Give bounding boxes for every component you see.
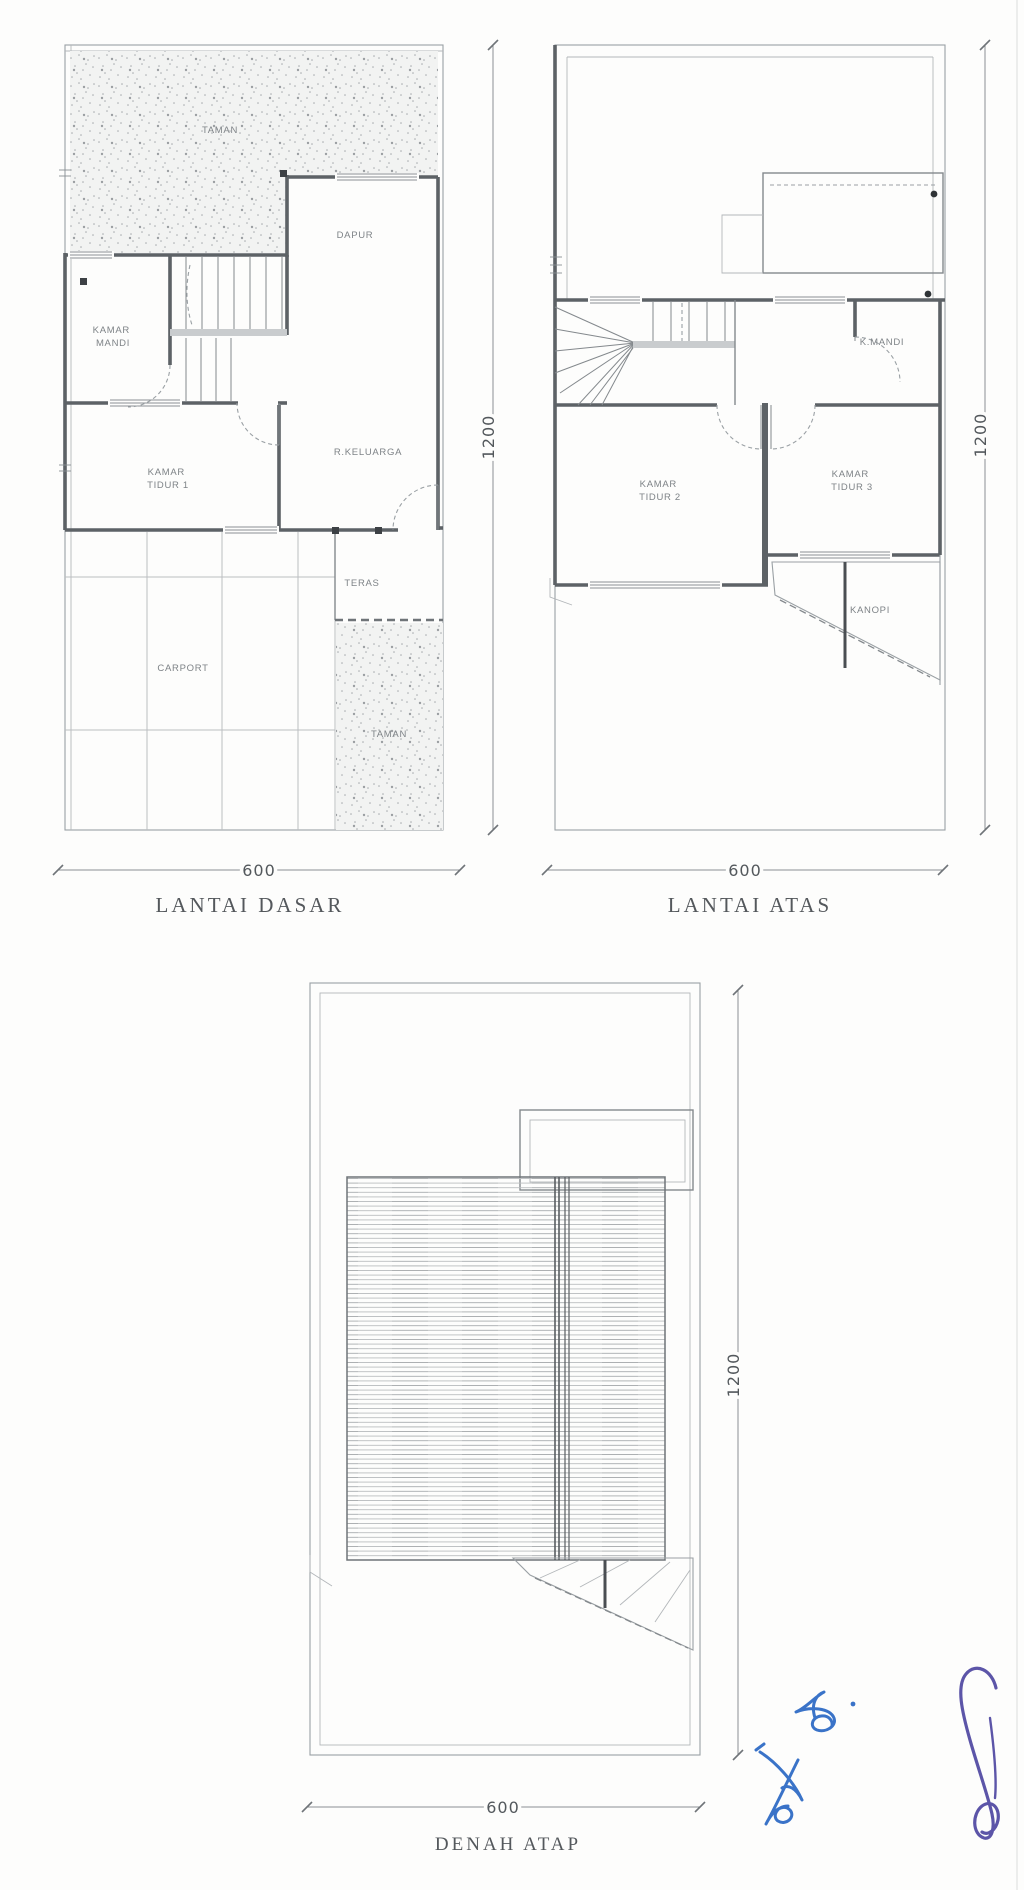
room-label-kamar-tidur-1: KAMAR TIDUR 1	[147, 467, 189, 491]
plan-lantai-atas: K.MANDI KAMAR TIDUR 2 KAMAR TIDUR 3 KANO…	[530, 25, 1010, 915]
scan-edge-artifact	[1016, 0, 1018, 1890]
garden-top-area	[70, 51, 438, 253]
signatures	[700, 1600, 1024, 1890]
drawing-sheet: TAMAN DAPUR KAMAR MANDI KAMAR TIDUR 1 R.…	[0, 0, 1024, 1890]
upper-floor-walls	[555, 45, 945, 585]
dim-600-upper: 600	[728, 861, 762, 880]
room-label-taman-top: TAMAN	[202, 125, 238, 136]
dim-1200-ground: 1200	[479, 415, 498, 460]
upper-floor-boundary	[550, 45, 945, 830]
staircase	[170, 257, 287, 401]
room-label-teras: TERAS	[344, 578, 379, 589]
dimension-width-ground: 600	[53, 861, 465, 880]
dimension-height-upper: 1200	[971, 40, 990, 835]
title-lantai-dasar: LANTAI DASAR	[156, 893, 345, 915]
dimension-width-upper: 600	[542, 861, 948, 880]
signature-purple	[961, 1668, 999, 1838]
signature-blue	[756, 1692, 855, 1824]
upper-floor-doors	[717, 337, 900, 449]
title-lantai-atas: LANTAI ATAS	[668, 893, 832, 915]
dim-1200-roof: 1200	[724, 1353, 743, 1398]
roof-canopy	[513, 1558, 693, 1650]
roof-main-slab	[347, 1177, 665, 1560]
room-label-r-keluarga: R.KELUARGA	[334, 447, 402, 458]
plan-denah-atap: 1200 600 DENAH ATAP	[240, 960, 780, 1870]
garden-bottom-area	[336, 623, 443, 830]
upper-staircase	[555, 300, 735, 405]
upper-canopy	[772, 555, 940, 685]
dim-600-roof: 600	[486, 1798, 520, 1817]
room-label-kanopi: KANOPI	[850, 605, 890, 616]
room-label-carport: CARPORT	[157, 663, 208, 674]
room-label-k-mandi: K.MANDI	[860, 337, 905, 348]
upper-floor-room-labels: K.MANDI KAMAR TIDUR 2 KAMAR TIDUR 3 KANO…	[639, 337, 904, 616]
room-label-dapur: DAPUR	[337, 230, 374, 241]
plan-lantai-dasar: TAMAN DAPUR KAMAR MANDI KAMAR TIDUR 1 R.…	[40, 25, 510, 915]
room-label-taman-bottom: TAMAN	[371, 729, 407, 740]
dimension-width-roof: 600	[302, 1798, 705, 1817]
carport-grid	[65, 530, 335, 830]
upper-void-room	[722, 173, 943, 297]
dimension-height-ground: 1200	[479, 40, 498, 835]
upper-floor-windows	[550, 257, 892, 589]
room-label-kamar-mandi: KAMAR MANDI	[93, 325, 134, 349]
dim-1200-upper: 1200	[971, 413, 990, 458]
room-label-kamar-tidur-2: KAMAR TIDUR 2	[639, 479, 681, 503]
title-denah-atap: DENAH ATAP	[435, 1834, 581, 1855]
room-label-kamar-tidur-3: KAMAR TIDUR 3	[831, 469, 873, 493]
dim-600-ground: 600	[242, 861, 276, 880]
